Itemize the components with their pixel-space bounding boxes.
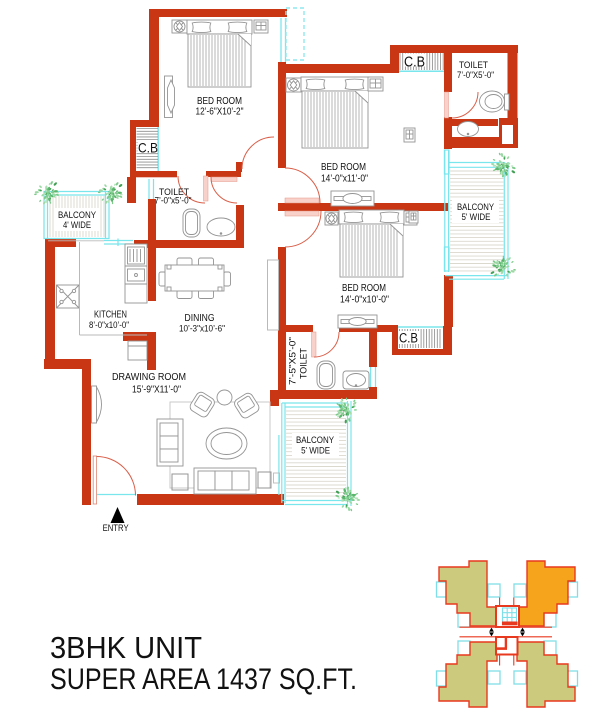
svg-text:5' WIDE: 5' WIDE xyxy=(301,446,330,456)
svg-text:C.B: C.B xyxy=(399,331,418,346)
svg-text:12’-6"X10’-2": 12’-6"X10’-2" xyxy=(196,107,244,118)
svg-text:7’-0"x5’-0": 7’-0"x5’-0" xyxy=(155,196,192,206)
svg-text:5' WIDE: 5' WIDE xyxy=(462,212,491,222)
svg-text:7’-0"X5’-0": 7’-0"X5’-0" xyxy=(457,70,494,80)
svg-text:BED ROOM: BED ROOM xyxy=(342,282,386,294)
svg-text:SUPER AREA 1437 SQ.FT.: SUPER AREA 1437 SQ.FT. xyxy=(50,663,357,696)
svg-text:DINING: DINING xyxy=(185,313,215,324)
svg-text:BALCONY: BALCONY xyxy=(296,435,335,446)
svg-text:3BHK UNIT: 3BHK UNIT xyxy=(50,630,202,665)
svg-text:BED ROOM: BED ROOM xyxy=(321,161,366,173)
svg-text:14’-0"x11’-0": 14’-0"x11’-0" xyxy=(321,174,368,185)
svg-text:8’-0"x10’-0": 8’-0"x10’-0" xyxy=(89,320,129,331)
svg-text:7’-5"X5’-0": 7’-5"X5’-0" xyxy=(288,337,298,385)
svg-text:15’-9"X11’-0": 15’-9"X11’-0" xyxy=(132,385,181,396)
svg-text:4' WIDE: 4' WIDE xyxy=(63,220,91,230)
svg-text:TOILET: TOILET xyxy=(299,348,310,379)
svg-text:14’-0"x10’-0": 14’-0"x10’-0" xyxy=(340,295,389,306)
svg-text:BED ROOM: BED ROOM xyxy=(197,95,242,107)
svg-text:C.B: C.B xyxy=(138,140,158,156)
svg-text:DRAWING ROOM: DRAWING ROOM xyxy=(112,371,186,383)
svg-text:C.B: C.B xyxy=(404,55,425,71)
svg-text:KITCHEN: KITCHEN xyxy=(94,310,127,321)
svg-text:ENTRY: ENTRY xyxy=(103,523,129,533)
svg-text:10’-3"x10’-6": 10’-3"x10’-6" xyxy=(179,324,225,335)
